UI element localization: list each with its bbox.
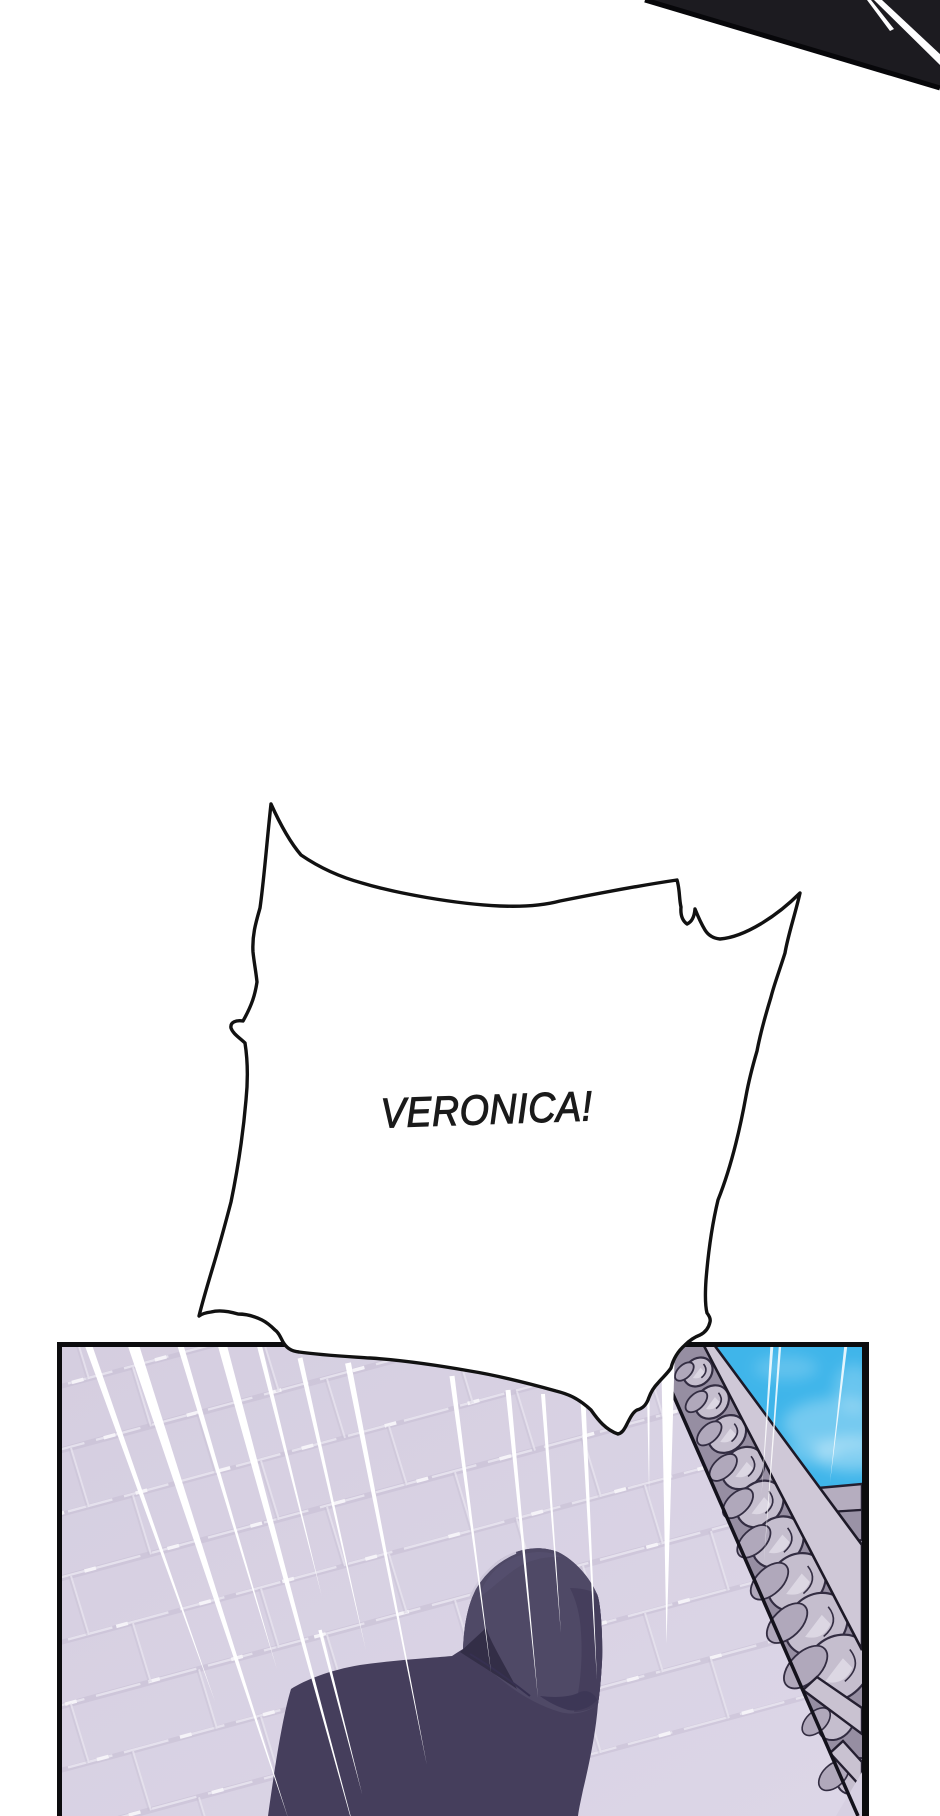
svg-text:VERONICA!: VERONICA! — [380, 1084, 593, 1138]
